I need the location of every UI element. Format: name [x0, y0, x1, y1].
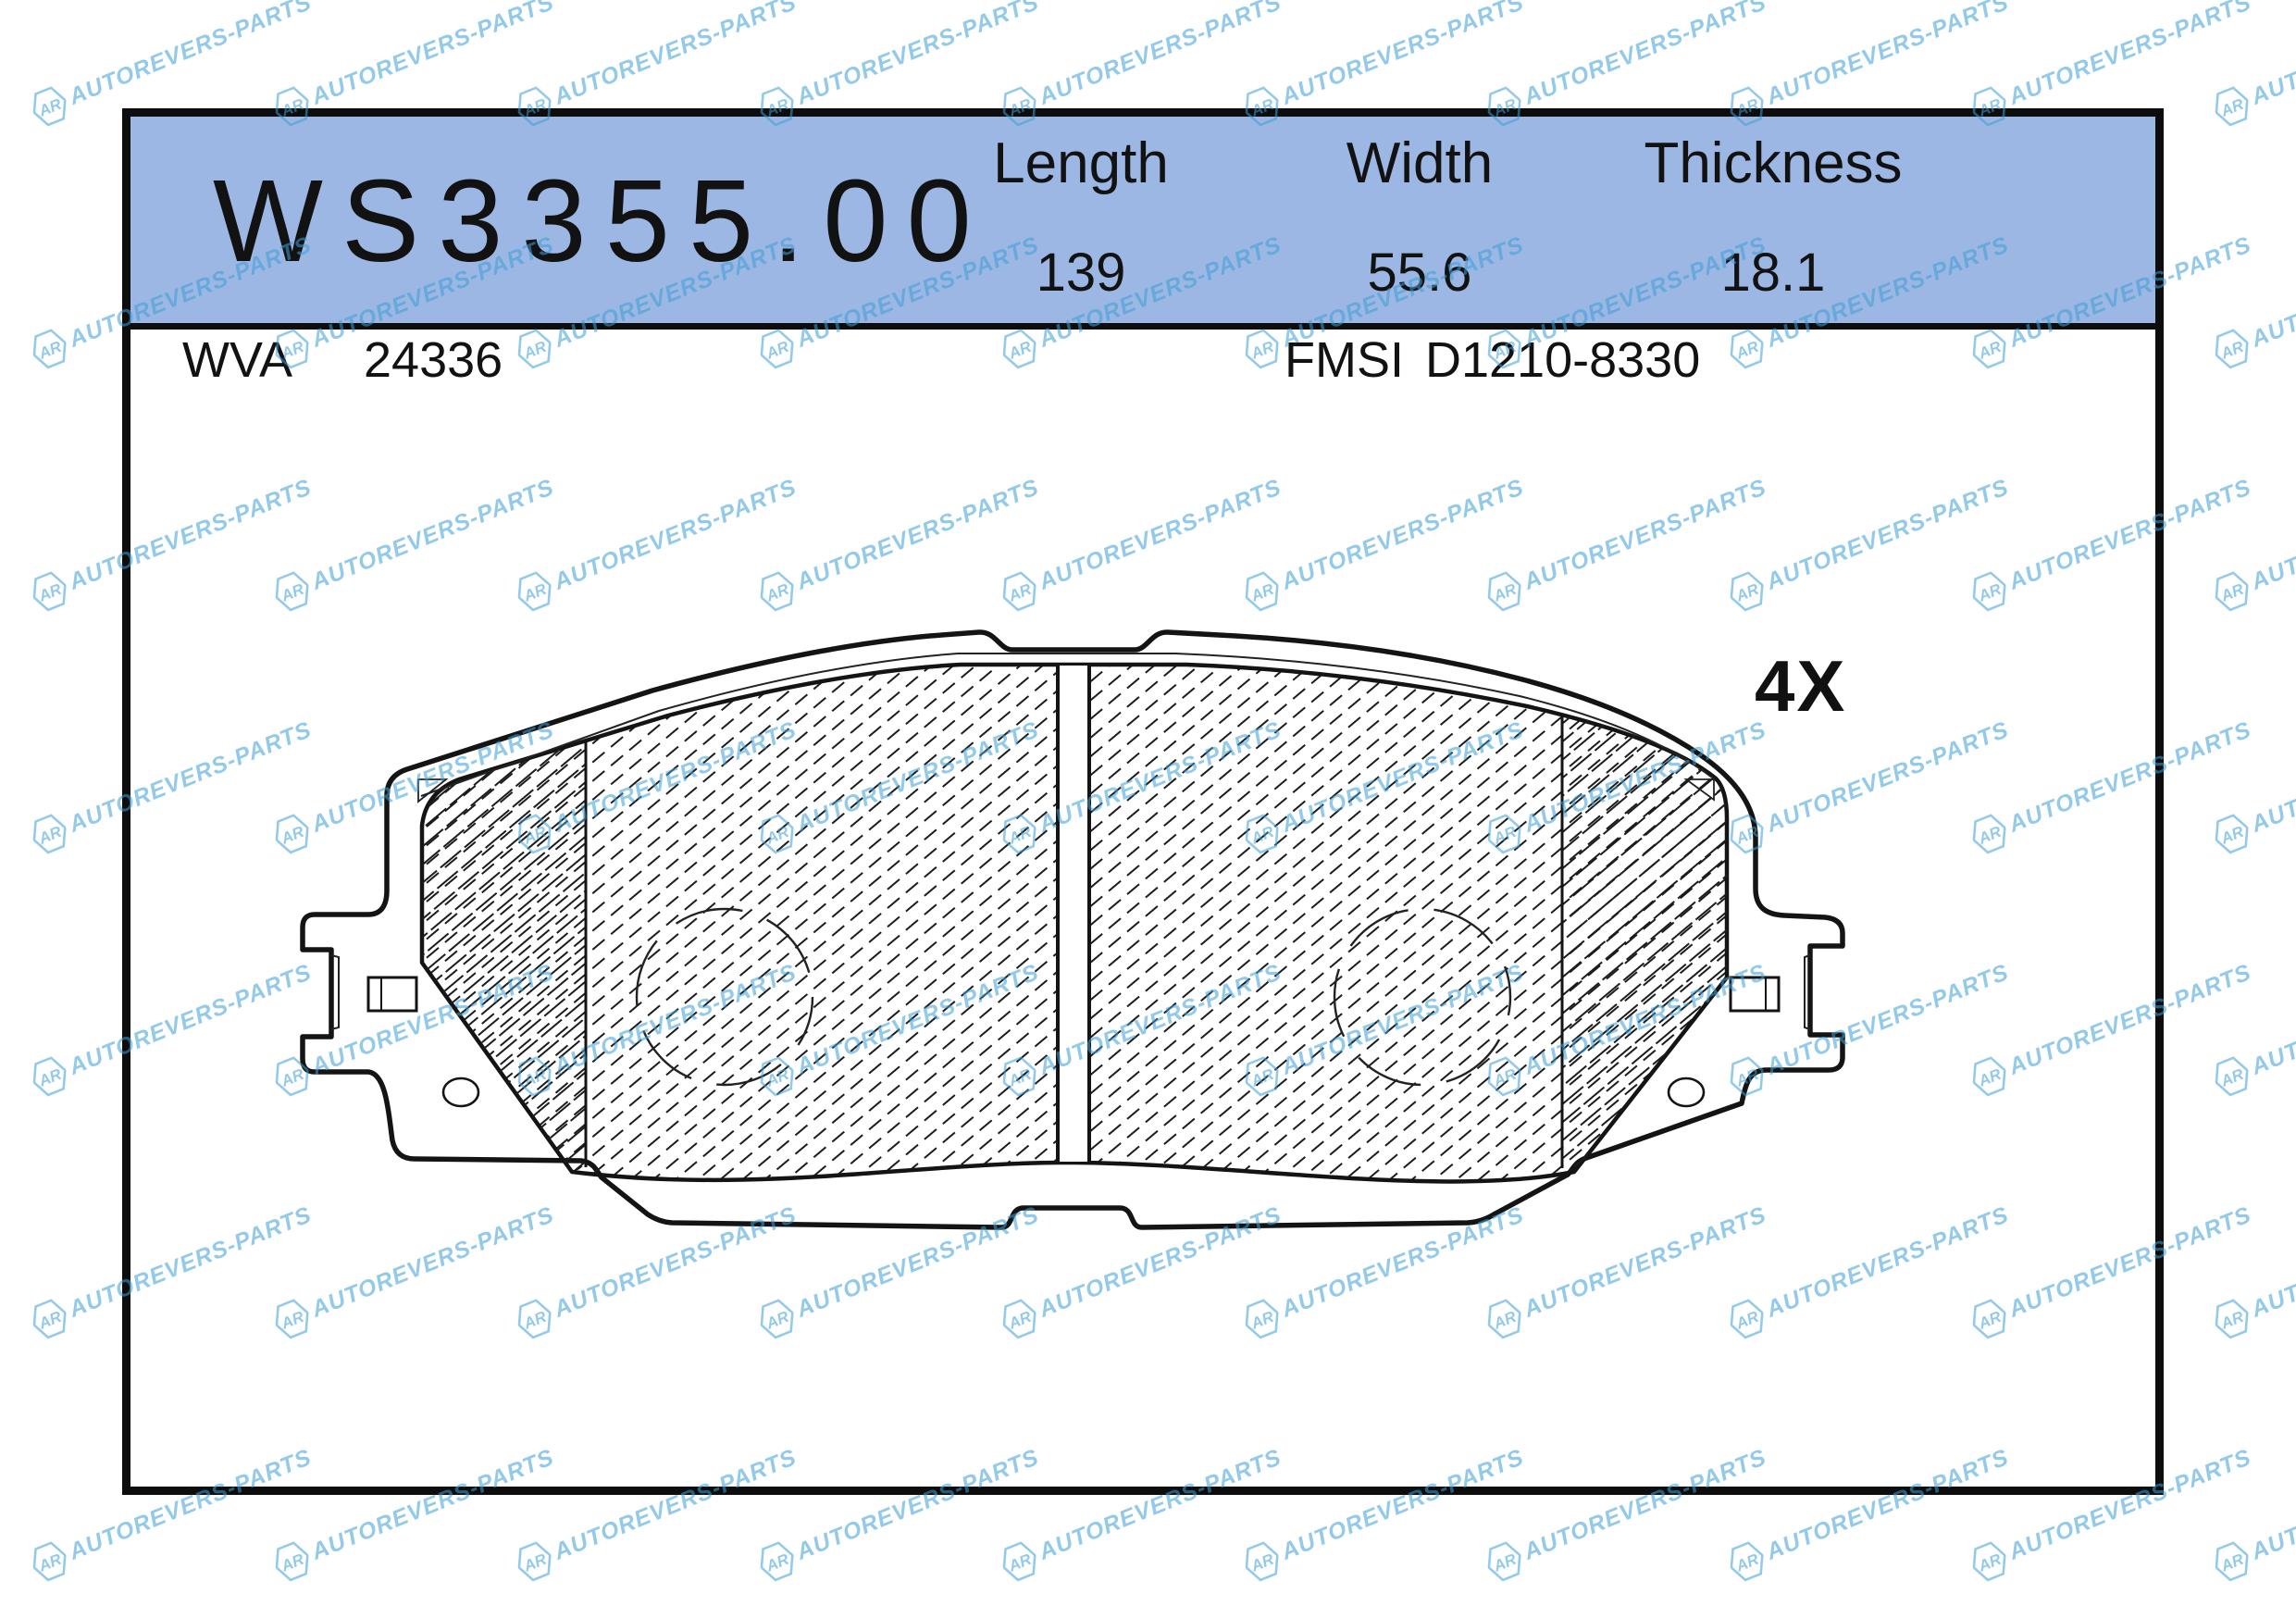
right-clip — [1731, 977, 1779, 1011]
catalog-card: WS3355.00 Length Width Thickness 139 55.… — [0, 0, 2296, 1618]
brake-pad-drawing — [0, 0, 2296, 1618]
center-slot — [1060, 666, 1087, 1162]
left-hole — [443, 1078, 478, 1106]
left-clip — [368, 977, 416, 1011]
right-hole — [1669, 1078, 1704, 1106]
